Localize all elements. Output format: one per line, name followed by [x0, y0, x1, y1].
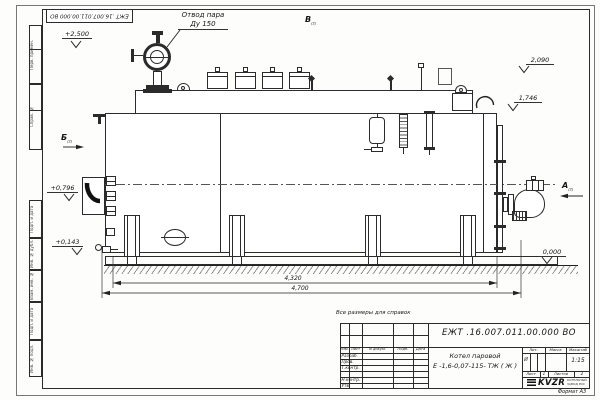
tb-sheet-label: Лист	[522, 372, 540, 376]
format-label: Формат А3	[552, 390, 592, 395]
tb-product-name-1: Котел паровой	[428, 353, 522, 360]
tb-line	[413, 323, 414, 389]
tb-col-docum: N докум.	[362, 348, 393, 352]
tb-row-prov: Пров.	[342, 360, 354, 364]
view-marker-v: В(2)	[305, 16, 316, 26]
level-flag	[72, 248, 82, 255]
tb-col-podp: Подп.	[393, 348, 413, 352]
view-marker-b: Б(2)	[61, 134, 72, 144]
tb-row-nkontr: Н.контр.	[342, 378, 361, 382]
tb-line	[340, 383, 428, 384]
level-flag	[542, 257, 552, 264]
dim-arrowhead	[113, 281, 121, 285]
elevation-ground: 0,000	[538, 249, 566, 257]
level-flag	[71, 41, 81, 48]
dimension-4700-label: 4,700	[278, 286, 322, 292]
tb-row-razrab: Разраб.	[342, 354, 358, 358]
kvzr-logo-icon	[527, 379, 536, 387]
view-marker-ref: (2)	[311, 22, 316, 26]
dim-arrowhead	[513, 291, 521, 295]
drawing-sheet: ЕЖТ .16.007.011.00.000 ВО Перв. примен. …	[0, 0, 600, 400]
tb-lit-value: И	[522, 358, 530, 363]
elevation-drum-top: 2,090	[526, 57, 554, 65]
level-flag	[519, 66, 529, 73]
tb-lit-label: Лит.	[522, 348, 545, 352]
kvzr-logo-text: KVZR	[538, 378, 565, 388]
tb-product-name-2: Е -1,6-0,07-115- ТЖ ( Ж )	[428, 363, 522, 370]
tb-line	[537, 353, 538, 371]
tb-line	[340, 371, 428, 372]
tb-scale-value: 1:15	[566, 358, 590, 364]
tb-line	[522, 353, 590, 354]
tb-masshtab-label: Масштаб	[566, 348, 590, 352]
tb-col-izm: Изм.	[340, 348, 349, 352]
elevation-burner-axis: +0,796	[47, 185, 78, 193]
tb-col-data: Дата	[413, 348, 428, 352]
tb-doc-number: ЕЖТ .16.007.011.00.000 ВО	[428, 329, 590, 338]
view-b-arrowhead	[76, 145, 84, 149]
tb-line	[393, 323, 394, 389]
dimension-4320-label: 4,320	[273, 276, 313, 282]
tb-massa-label: Масса	[545, 348, 566, 352]
dim-arrowhead	[102, 291, 110, 295]
level-flag	[64, 194, 74, 201]
reference-note: Все размеры для справок	[336, 311, 411, 317]
tb-sheets-label: Листов	[548, 372, 574, 376]
kvzr-logo-caption: КОТЕЛЬНЫЙ ЗАВОД РОС	[567, 379, 587, 387]
tb-line	[362, 323, 363, 389]
view-marker-ref: (2)	[67, 140, 72, 144]
elevation-base: +0,143	[52, 239, 83, 247]
tb-sheet-value: 1	[540, 372, 548, 376]
steam-callout-line2: Ду 150	[178, 21, 228, 30]
elevation-top-valve: +2,500	[62, 31, 92, 39]
tb-col-list: Лист	[349, 348, 362, 352]
view-marker-a: А(2)	[562, 182, 573, 192]
tb-row-utv: Утв.	[342, 384, 351, 388]
view-a-arrowhead	[560, 194, 568, 198]
elevation-rear-top: 1,746	[514, 95, 542, 103]
rear-hook-pipe	[477, 97, 494, 108]
kvzr-caption-line2: ЗАВОД РОС	[567, 383, 587, 387]
steam-callout-line1: Отвод пара	[178, 12, 228, 19]
tb-sheets-value: 2	[574, 372, 590, 376]
tb-line	[340, 335, 428, 336]
front-elbow-pipe	[87, 183, 100, 201]
level-flag	[508, 104, 518, 111]
dim-arrowhead	[489, 281, 497, 285]
steam-callout-leader	[167, 30, 180, 47]
view-marker-ref: (2)	[568, 188, 573, 192]
tb-row-tkontr: Т.контр.	[342, 366, 360, 370]
